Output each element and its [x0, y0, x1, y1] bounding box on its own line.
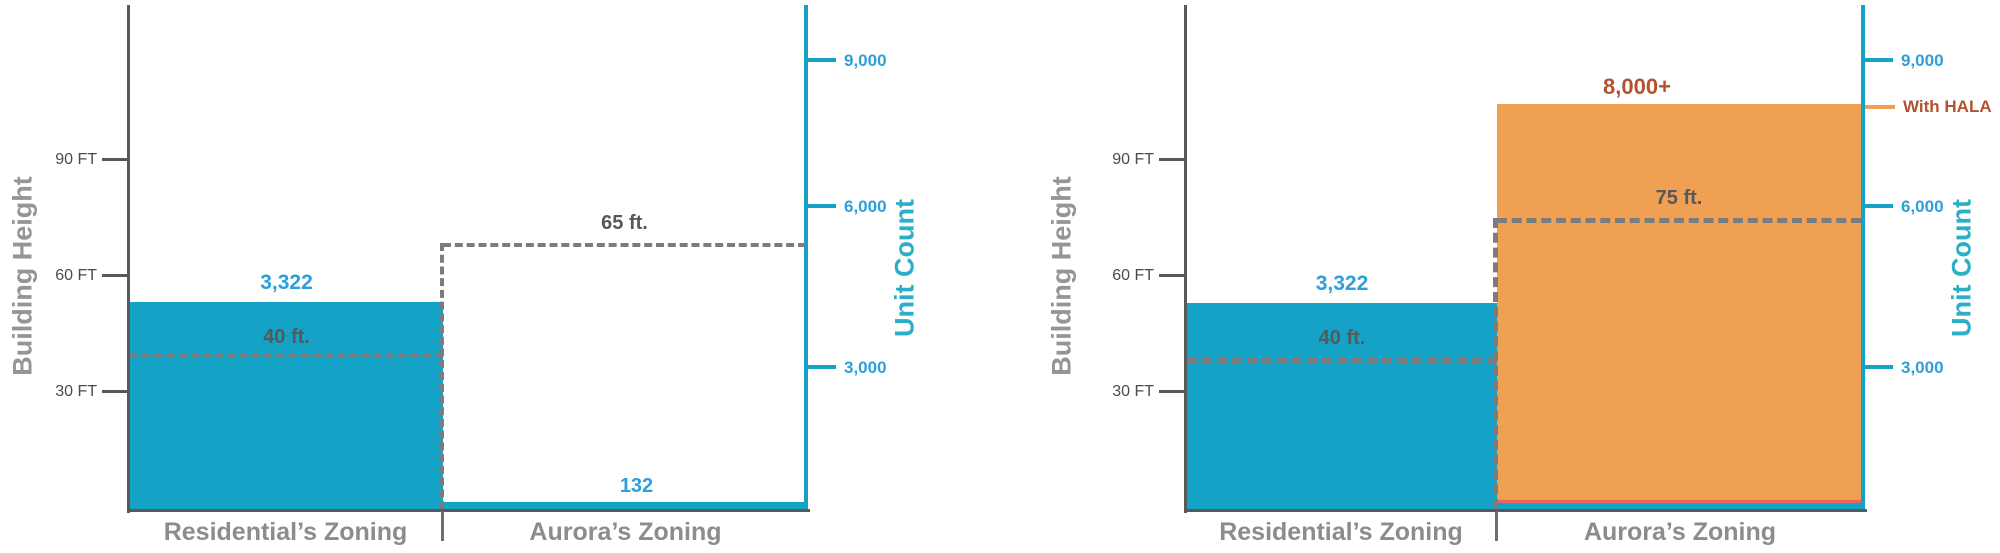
unit-tick-9000: [808, 58, 836, 62]
aurora-hala-units-bar: [1497, 104, 1861, 503]
height-tick-60: [1159, 274, 1185, 277]
aurora-units-label: 132: [455, 475, 818, 497]
unit-tick-9000: [1865, 58, 1893, 62]
category-label-aurora: Aurora’s Zoning: [1499, 518, 1861, 546]
unit-axis-line: [1861, 5, 1865, 512]
category-divider: [441, 511, 444, 541]
unit-tick-3000: [1865, 365, 1893, 369]
unit-tick-6000: [808, 204, 836, 208]
unit-tick-label-9000: 9,000: [1901, 52, 1944, 70]
hala-tick: [1865, 105, 1895, 109]
unit-tick-label-6000: 6,000: [844, 198, 887, 216]
residential-height-label: 40 ft.: [1187, 328, 1497, 349]
aurora-height-label: 65 ft.: [443, 213, 806, 234]
unit-tick-6000: [1865, 204, 1893, 208]
height-tick-90: [102, 158, 128, 161]
building-height-axis-title: Building Height: [1047, 176, 1078, 375]
baseline: [127, 509, 810, 512]
aurora-units-bar: [443, 502, 806, 509]
residential-units-label: 3,322: [130, 272, 443, 294]
category-divider: [1495, 511, 1498, 541]
baseline: [1184, 509, 1867, 512]
height-tick-label-60: 60 FT: [30, 267, 97, 284]
height-tick-30: [102, 390, 128, 393]
unit-axis-line: [804, 5, 808, 512]
height-tick-label-30: 30 FT: [30, 383, 97, 400]
unit-count-axis-title: Unit Count: [1947, 199, 1978, 337]
residential-height-dash: [130, 354, 443, 358]
height-tick-label-90: 90 FT: [1087, 151, 1154, 168]
residential-height-label: 40 ft.: [130, 327, 443, 348]
hala-annotation-label: With HALA: [1903, 98, 1992, 116]
aurora-units-label: 8,000+: [1455, 75, 1819, 98]
residential-units-label: 3,322: [1187, 273, 1497, 295]
category-label-aurora: Aurora’s Zoning: [445, 518, 806, 546]
category-label-residential: Residential’s Zoning: [130, 518, 441, 546]
aurora-height-dash-side: [1493, 218, 1498, 509]
unit-tick-label-3000: 3,000: [1901, 359, 1944, 377]
aurora-height-label: 75 ft.: [1497, 188, 1861, 209]
height-tick-30: [1159, 390, 1185, 393]
unit-count-axis-title: Unit Count: [890, 199, 921, 337]
residential-height-dash: [1187, 358, 1497, 363]
height-tick-90: [1159, 158, 1185, 161]
unit-tick-label-3000: 3,000: [844, 359, 887, 377]
unit-tick-label-6000: 6,000: [1901, 198, 1944, 216]
unit-tick-label-9000: 9,000: [844, 52, 887, 70]
height-tick-label-30: 30 FT: [1087, 383, 1154, 400]
aurora-height-dash-top: [443, 243, 806, 247]
height-tick-60: [102, 274, 128, 277]
aurora-height-dash-top: [1497, 218, 1861, 223]
category-label-residential: Residential’s Zoning: [1187, 518, 1495, 546]
dual-zoning-charts: Building Height Unit Count 90 FT 60 FT 3…: [0, 0, 2000, 553]
height-tick-label-90: 90 FT: [30, 151, 97, 168]
height-tick-label-60: 60 FT: [1087, 267, 1154, 284]
unit-tick-3000: [808, 365, 836, 369]
